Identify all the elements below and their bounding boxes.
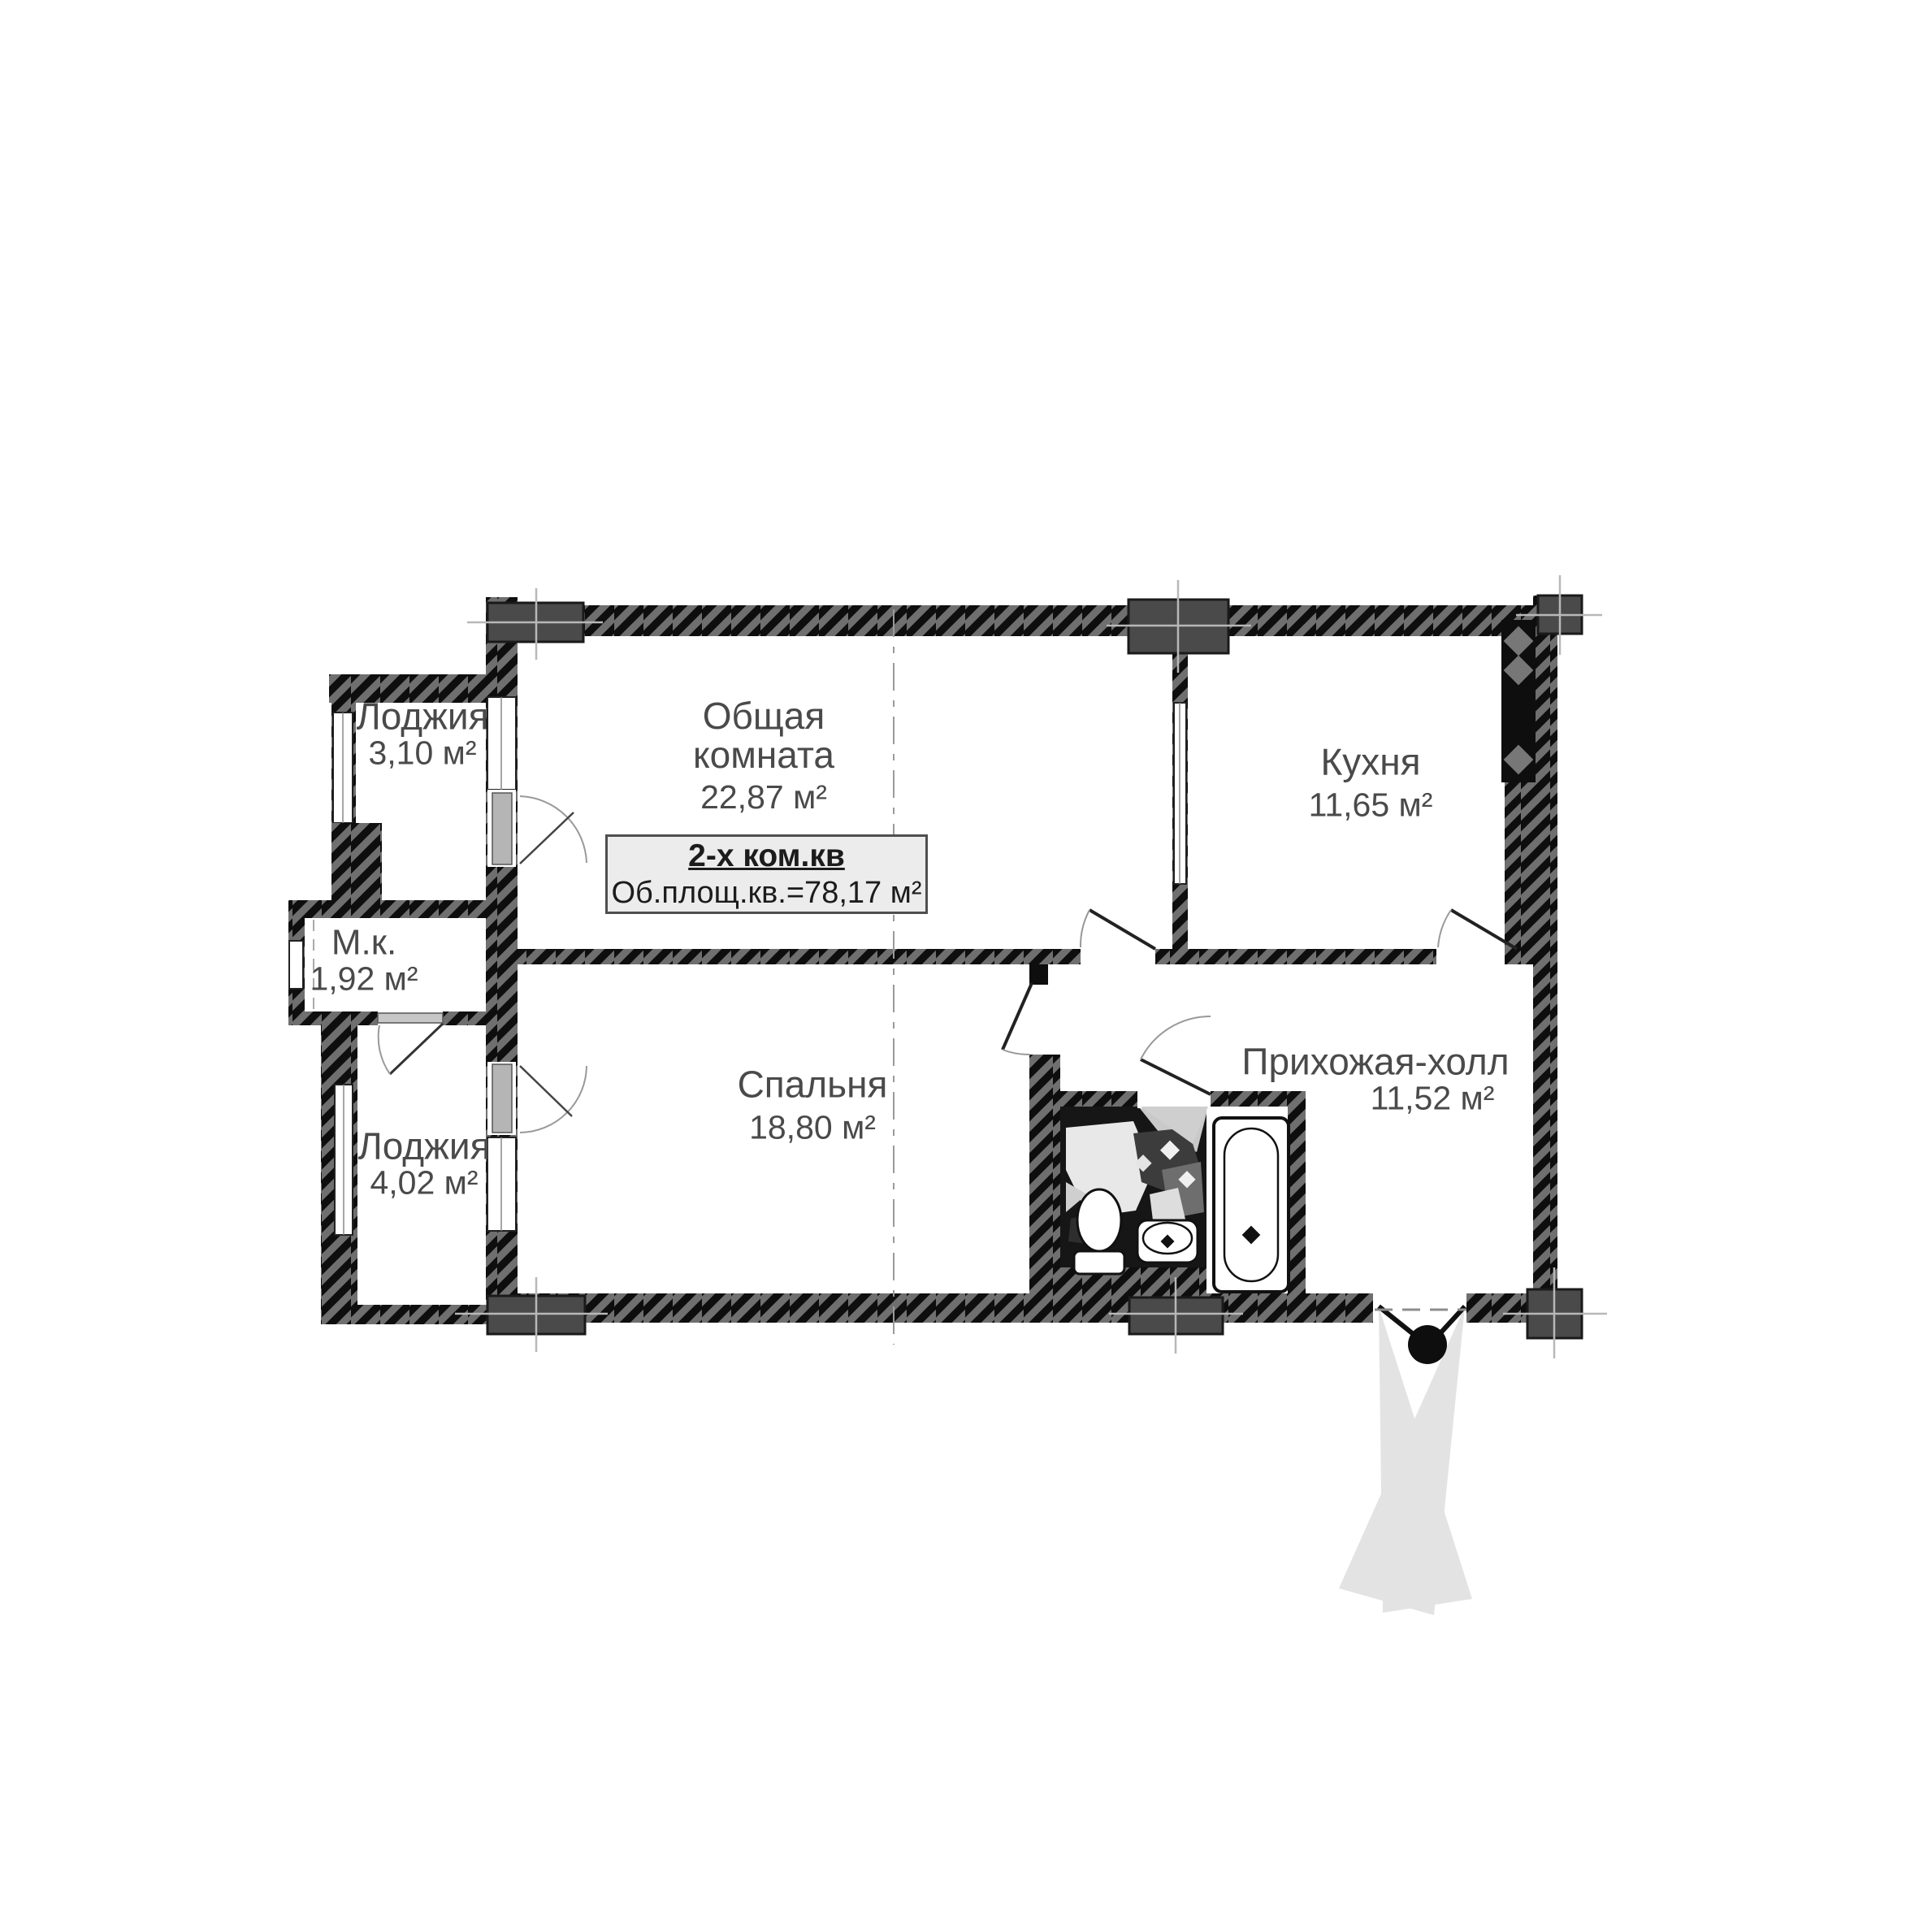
kitchen-door-arc — [1438, 910, 1451, 947]
bathroom-door-arc — [1141, 1016, 1211, 1059]
wall-right — [1533, 596, 1557, 1302]
room-area: 22,87 м² — [693, 780, 834, 815]
interior-walls — [518, 640, 1533, 1293]
room-area: 3,10 м² — [357, 736, 489, 771]
room-area: 18,80 м² — [738, 1111, 888, 1146]
mk-door-leaf-closed — [378, 1013, 443, 1023]
annex-left — [288, 674, 518, 1324]
ventilation-shaft — [1501, 620, 1536, 782]
wall-step-bedroom-door — [1029, 964, 1048, 985]
bedroom-door-arc — [1003, 1050, 1030, 1055]
wall-bottom-left — [518, 1293, 1373, 1323]
wall-living-bedroom — [518, 949, 1081, 964]
balcony-door-living-leaf — [492, 793, 512, 864]
living-door-arc — [1081, 910, 1089, 947]
bedroom-door-leaf — [1003, 983, 1032, 1050]
wall-kitchen-right — [1505, 780, 1533, 964]
room-label-loggia-bottom: Лоджия 4,02 м² — [358, 1126, 491, 1200]
room-label-bedroom: Спальня 18,80 м² — [738, 1064, 888, 1145]
room-name: Кухня — [1309, 742, 1433, 781]
room-label-hallway: Прихожая-холл 11,52 м² — [1241, 1042, 1509, 1115]
wall-stub-kitchen-door — [1517, 949, 1533, 964]
room-label-loggia-top: Лоджия 3,10 м² — [357, 696, 489, 770]
apartment-total-area: Об.площ.кв.=78,17 м² — [611, 876, 921, 911]
toilet-tank — [1074, 1251, 1124, 1274]
bathroom-door-leaf — [1141, 1059, 1211, 1094]
apartment-info-box: 2-х ком.кв Об.площ.кв.=78,17 м² — [605, 834, 928, 914]
balcony-door-bedroom-leaf — [492, 1064, 512, 1133]
room-name-line1: Общая — [693, 696, 834, 735]
bathroom-wall-right — [1288, 1091, 1306, 1293]
floor-plan-drawing — [0, 0, 1932, 1932]
room-area: 1,92 м² — [310, 962, 418, 997]
living-door-leaf — [1089, 910, 1155, 949]
interior-doors — [1003, 910, 1517, 1055]
entrance-knob — [1408, 1325, 1447, 1364]
room-area: 11,65 м² — [1309, 788, 1433, 823]
room-area: 4,02 м² — [358, 1166, 491, 1201]
toilet — [1077, 1189, 1121, 1251]
wall-kitchen-hall — [1188, 949, 1436, 964]
balcony-door-living-line — [520, 812, 574, 864]
room-label-mk: М.к. 1,92 м² — [310, 924, 418, 996]
room-name: Спальня — [738, 1064, 888, 1103]
room-name: Лоджия — [358, 1126, 491, 1165]
mk-door-arc — [379, 1025, 390, 1074]
bathroom-door-opening — [1137, 1089, 1211, 1108]
room-name: Прихожая-холл — [1241, 1042, 1509, 1081]
wall-top — [487, 605, 1538, 636]
wall-bottom-right — [1466, 1293, 1533, 1323]
room-name: Лоджия — [357, 696, 489, 735]
mk-window — [289, 941, 303, 989]
floor-plan-page: Лоджия 3,10 м² М.к. 1,92 м² Лоджия 4,02 … — [0, 0, 1932, 1932]
apartment-type: 2-х ком.кв — [688, 838, 845, 874]
balcony-door-bedroom-line — [520, 1066, 572, 1116]
room-name: М.к. — [310, 924, 418, 961]
room-name-line2: комната — [693, 735, 834, 774]
room-area: 11,52 м² — [1355, 1081, 1509, 1116]
mk-door-leaf — [390, 1024, 443, 1074]
entrance-door — [1339, 1306, 1472, 1615]
wall-bedroom-hall — [1029, 1055, 1060, 1293]
room-label-living: Общая комната 22,87 м² — [693, 696, 834, 815]
mk-wall-top — [288, 900, 518, 918]
room-label-kitchen: Кухня 11,65 м² — [1309, 742, 1433, 822]
